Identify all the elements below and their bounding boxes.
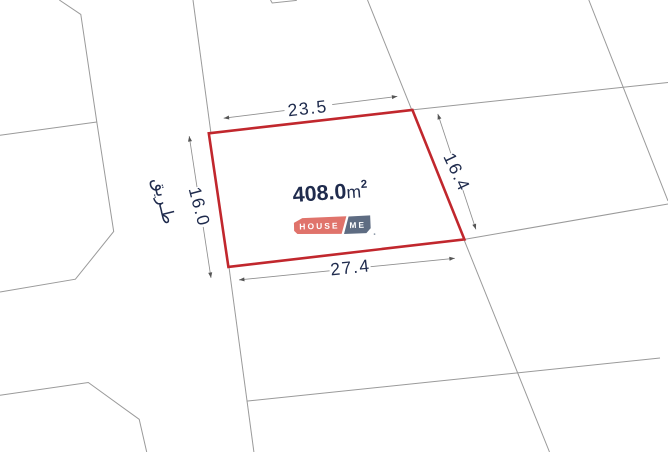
svg-text:m: m bbox=[346, 181, 362, 202]
svg-text:408.0: 408.0 bbox=[292, 179, 347, 207]
svg-text:2: 2 bbox=[360, 179, 367, 191]
svg-text:HOUSE: HOUSE bbox=[299, 220, 340, 231]
svg-text:27.4: 27.4 bbox=[329, 255, 371, 279]
svg-text:ME: ME bbox=[349, 220, 366, 230]
